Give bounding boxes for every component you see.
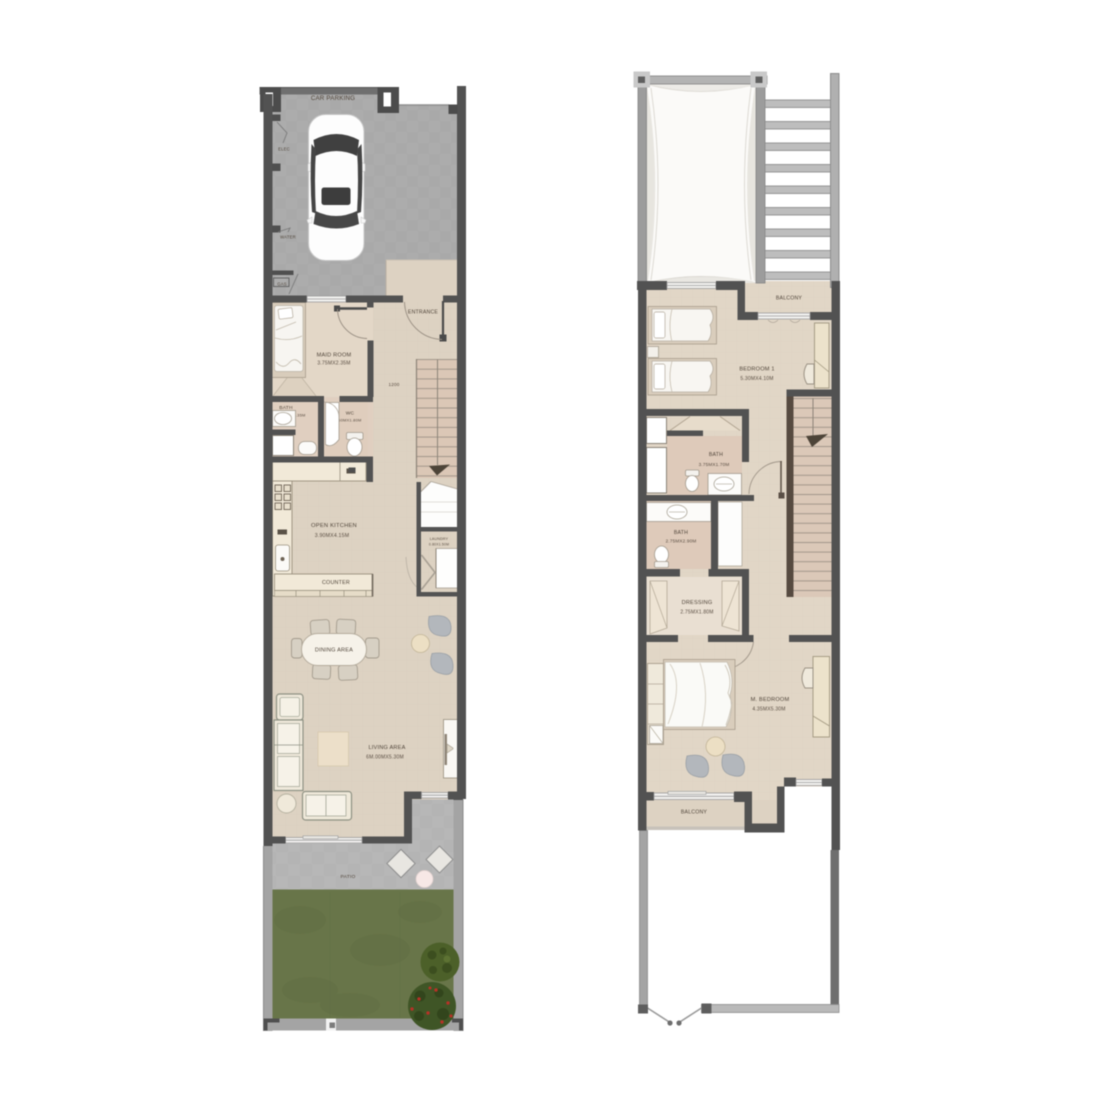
svg-text:DRESSING: DRESSING xyxy=(682,600,713,606)
svg-text:3.90MX4.15M: 3.90MX4.15M xyxy=(315,533,350,539)
svg-text:5.30MX4.10M: 5.30MX4.10M xyxy=(740,376,773,382)
svg-text:LIVING AREA: LIVING AREA xyxy=(368,745,405,751)
svg-text:BATH: BATH xyxy=(709,452,723,458)
svg-text:3.75MX1.70M: 3.75MX1.70M xyxy=(699,462,730,467)
svg-text:BATH: BATH xyxy=(674,530,688,536)
svg-text:GAS: GAS xyxy=(277,282,286,287)
svg-text:4.35MX5.30M: 4.35MX5.30M xyxy=(752,707,785,713)
svg-text:BEDROOM 1: BEDROOM 1 xyxy=(739,367,774,373)
svg-text:WC: WC xyxy=(346,411,355,417)
svg-text:2.75MX1.80M: 2.75MX1.80M xyxy=(680,610,713,616)
svg-text:BALCONY: BALCONY xyxy=(681,810,708,816)
svg-text:WATER: WATER xyxy=(280,235,296,240)
svg-text:3.75MX2.35M: 3.75MX2.35M xyxy=(317,361,350,367)
svg-text:6M.00MX5.30M: 6M.00MX5.30M xyxy=(366,755,404,761)
svg-text:BALCONY: BALCONY xyxy=(776,296,803,302)
svg-text:ELEC: ELEC xyxy=(278,147,290,152)
svg-text:ENTRANCE: ENTRANCE xyxy=(408,310,438,316)
svg-text:MAID ROOM: MAID ROOM xyxy=(317,353,352,359)
svg-text:1200: 1200 xyxy=(388,382,399,387)
svg-text:LAUNDRY: LAUNDRY xyxy=(430,537,449,541)
svg-text:OPEN KITCHEN: OPEN KITCHEN xyxy=(311,523,357,529)
svg-text:0.80X1.50M: 0.80X1.50M xyxy=(429,543,449,547)
svg-text:2.75MX2.90M: 2.75MX2.90M xyxy=(666,539,697,544)
svg-text:COUNTER: COUNTER xyxy=(322,580,350,586)
svg-text:CAR PARKING: CAR PARKING xyxy=(311,95,355,102)
svg-text:M. BEDROOM: M. BEDROOM xyxy=(751,697,790,703)
svg-text:PATIO: PATIO xyxy=(341,874,356,880)
svg-text:DINING AREA: DINING AREA xyxy=(315,648,353,654)
